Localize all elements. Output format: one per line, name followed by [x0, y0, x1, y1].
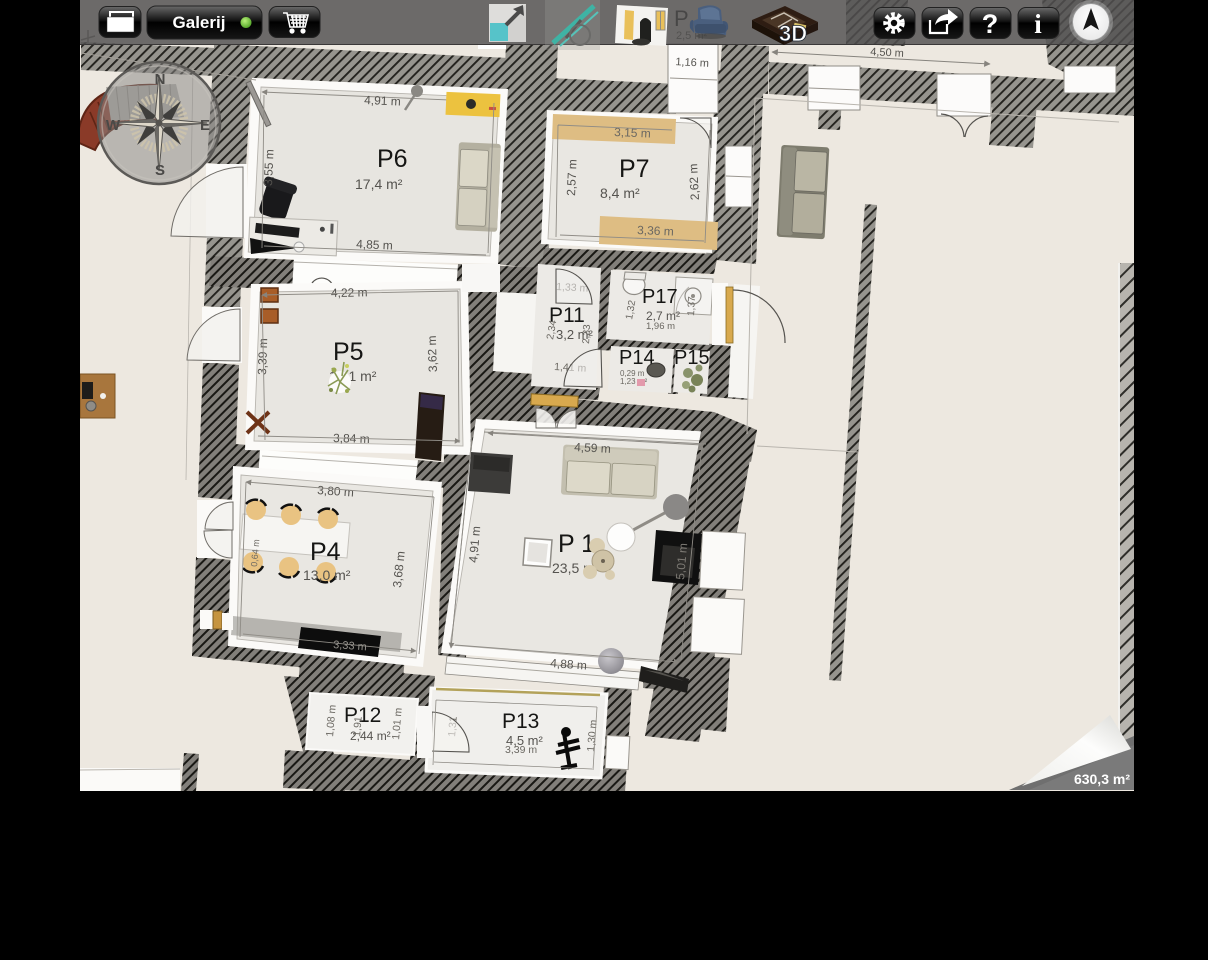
- svg-text:4,88 m: 4,88 m: [550, 656, 588, 673]
- svg-text:P17: P17: [642, 286, 678, 308]
- svg-text:?: ?: [982, 9, 999, 39]
- svg-text:3,36 m: 3,36 m: [637, 223, 674, 239]
- svg-text:S: S: [155, 162, 165, 179]
- svg-text:i: i: [1034, 9, 1042, 39]
- svg-text:8,4 m²: 8,4 m²: [600, 185, 640, 201]
- svg-text:P13: P13: [502, 710, 539, 733]
- svg-text:630,3 m²: 630,3 m²: [1074, 771, 1130, 787]
- svg-text:3D: 3D: [779, 21, 807, 46]
- svg-text:3,33 m: 3,33 m: [333, 639, 367, 653]
- svg-text:1,91: 1,91: [351, 716, 365, 738]
- svg-text:P7: P7: [619, 155, 650, 183]
- svg-text:2,57 m: 2,57 m: [564, 159, 580, 196]
- svg-text:Galerij: Galerij: [173, 13, 226, 32]
- svg-text:3,80 m: 3,80 m: [317, 483, 355, 500]
- svg-text:4,91 m: 4,91 m: [364, 93, 401, 109]
- svg-text:1,96 m: 1,96 m: [646, 321, 675, 332]
- svg-text:W: W: [106, 117, 121, 134]
- svg-text:1,16 m: 1,16 m: [675, 56, 709, 70]
- svg-text:17,4 m²: 17,4 m²: [355, 176, 403, 192]
- svg-text:P15: P15: [674, 347, 710, 369]
- svg-text:P4: P4: [310, 538, 341, 566]
- svg-text:2,62 m: 2,62 m: [686, 163, 702, 200]
- svg-text:3,39 m: 3,39 m: [505, 744, 537, 756]
- svg-text:1,37: 1,37: [686, 296, 698, 316]
- svg-text:3,62 m: 3,62 m: [425, 335, 440, 372]
- svg-text:P6: P6: [377, 145, 408, 173]
- svg-text:2,33: 2,33: [581, 324, 593, 344]
- svg-text:P5: P5: [333, 338, 364, 366]
- svg-text:E: E: [200, 117, 210, 134]
- svg-text:4,50 m: 4,50 m: [870, 46, 904, 60]
- svg-text:4,59 m: 4,59 m: [574, 440, 611, 456]
- svg-text:13,0 m²: 13,0 m²: [303, 567, 351, 583]
- svg-text:N: N: [155, 71, 166, 88]
